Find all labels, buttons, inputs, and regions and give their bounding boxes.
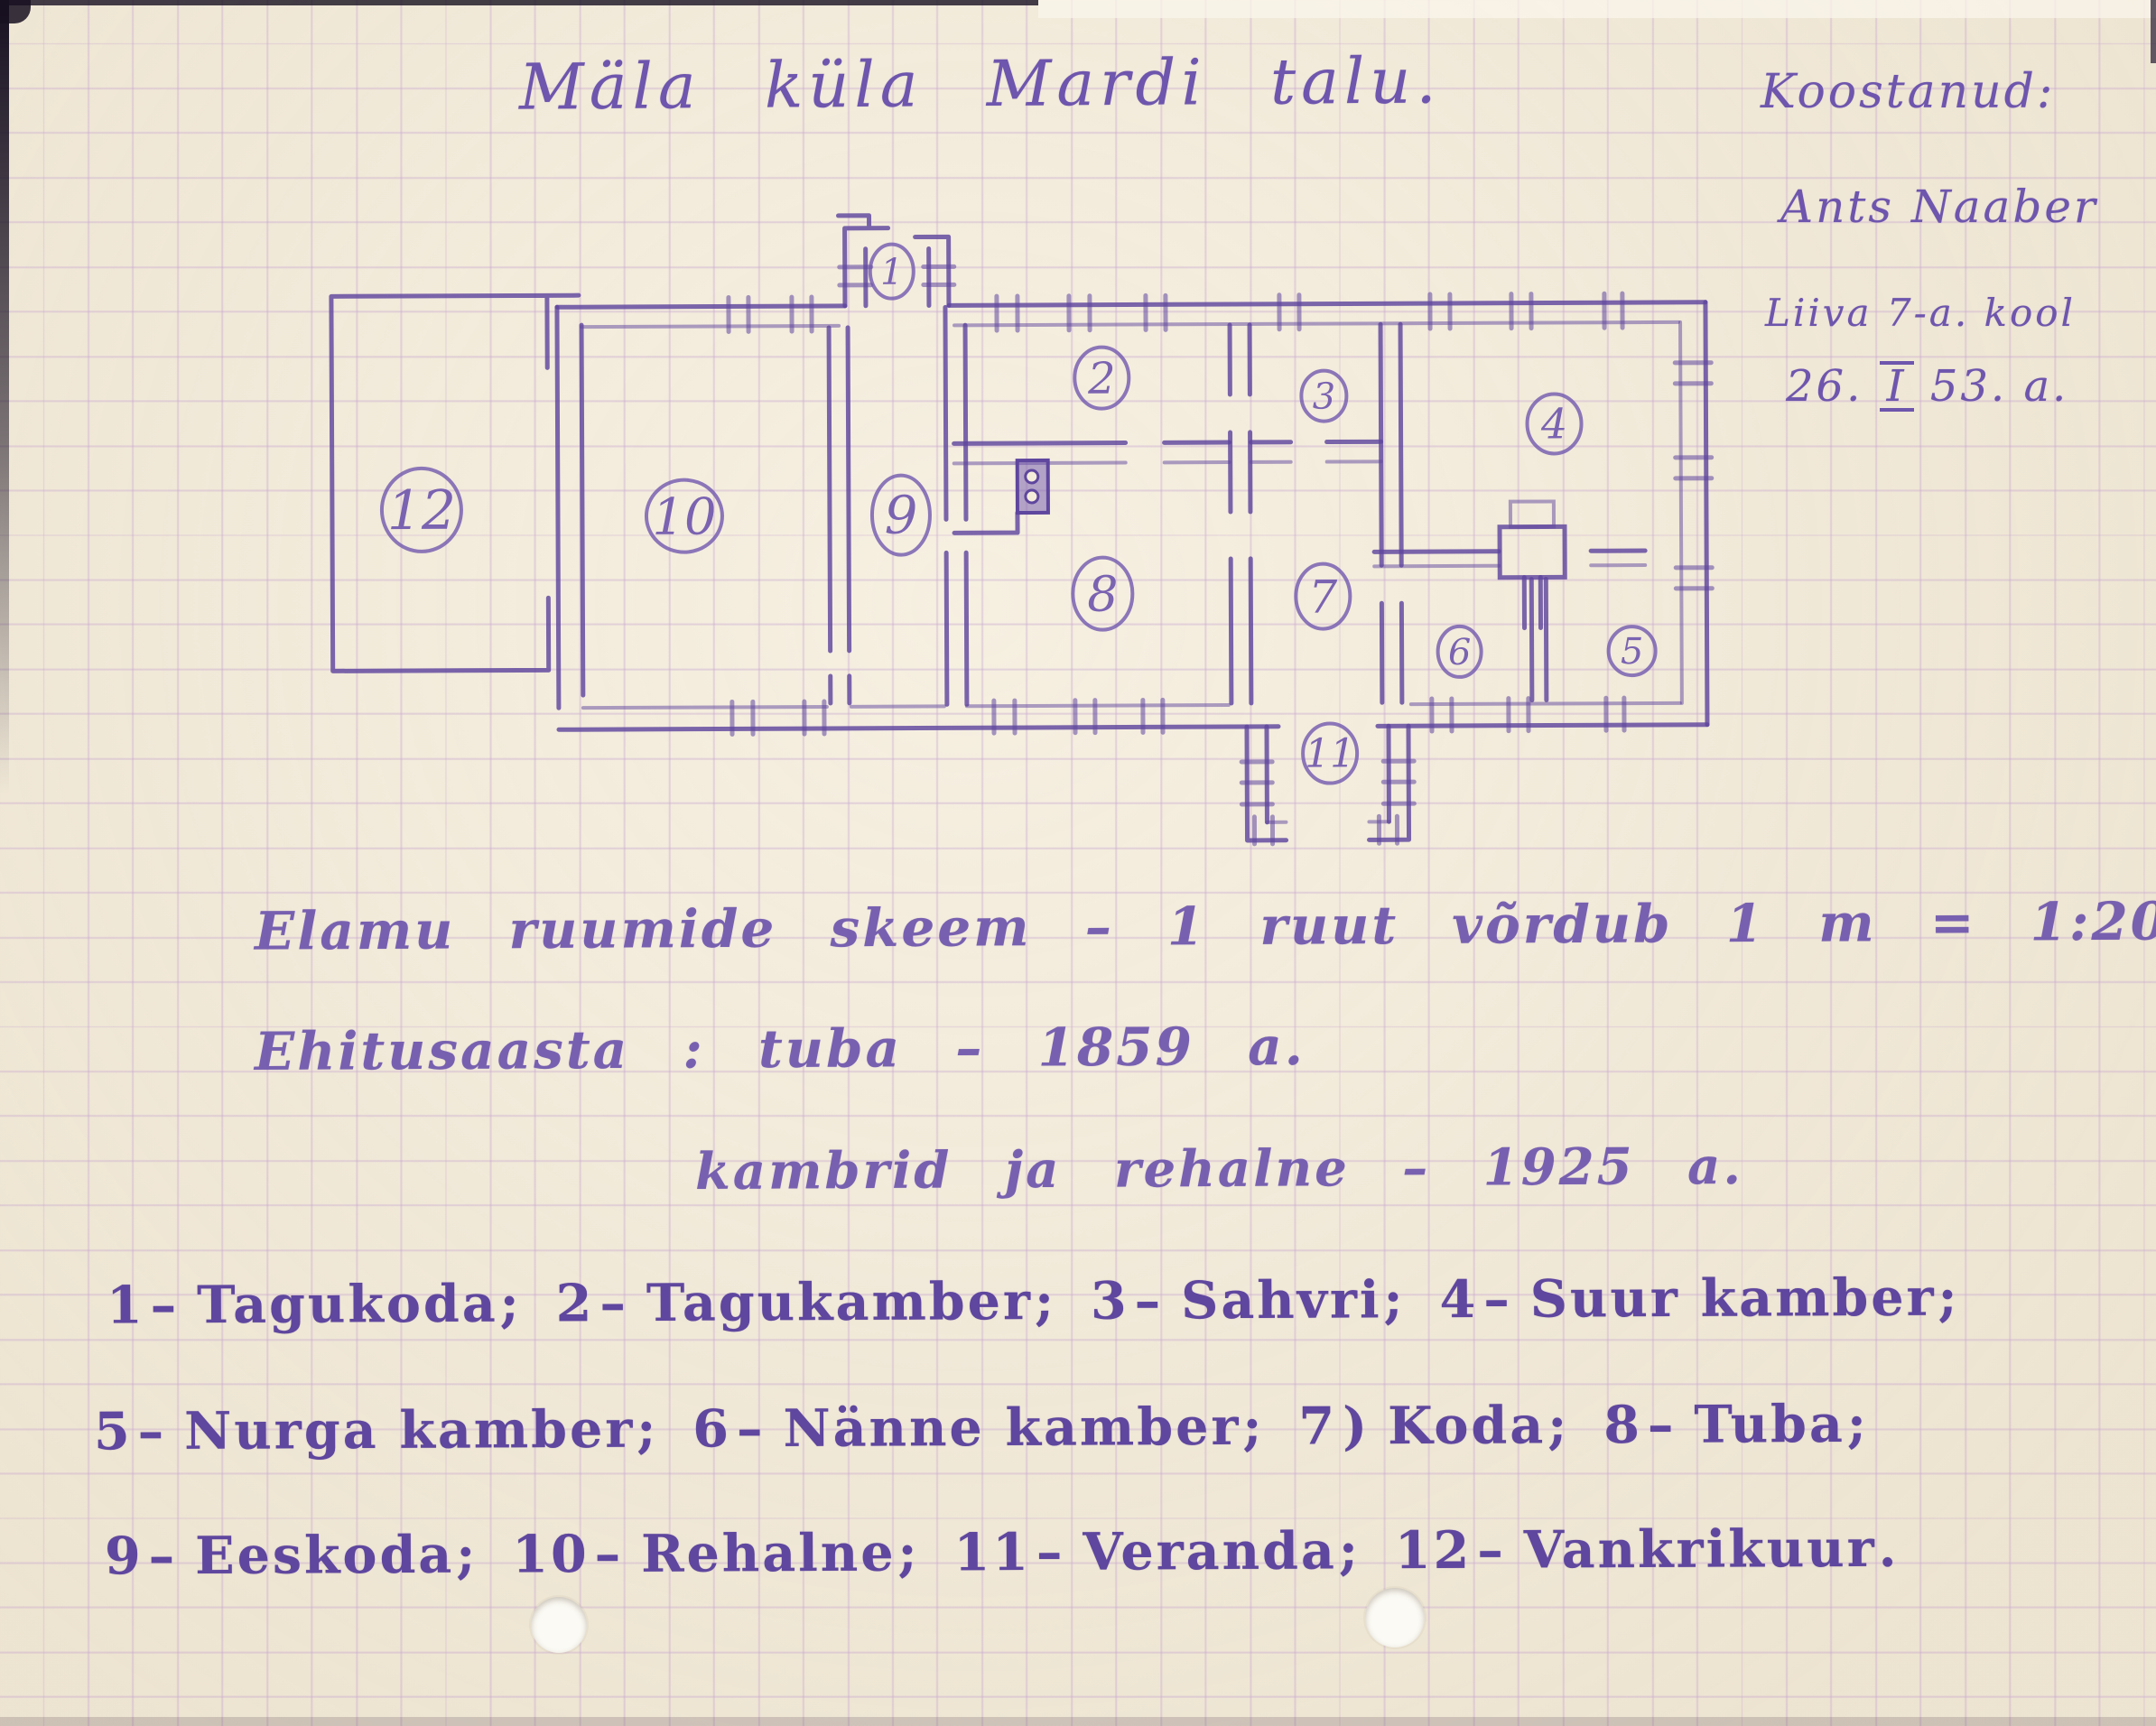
svg-text:9: 9 [884,485,917,546]
legend-delimiter: . [1879,1518,1900,1579]
room-label-9: 9 [872,475,930,554]
legend-room-number: 6 [692,1398,731,1459]
legend-separator: – [599,1273,628,1333]
legend-room-number: 1 [107,1275,145,1335]
date-day: 26. [1786,361,1863,412]
legend-row-2: 5–Nurga kamber;6–Nänne kamber;7)Koda;8–T… [94,1394,1903,1462]
scan-edge-top [0,0,1038,5]
room-label-11: 11 [1303,723,1357,783]
legend-separator: – [1648,1395,1677,1455]
punch-hole-right [1365,1588,1425,1647]
legend-delimiter: ; [1339,1520,1361,1581]
scheme-scale-note: Elamu ruumide skeem – 1 ruut võrdub 1 m … [255,890,2156,961]
room-label-3: 3 [1301,370,1346,421]
svg-text:3: 3 [1313,376,1336,418]
room-label-12: 12 [382,469,461,552]
scanned-notebook-page: { "document": { "title": "Mäla küla Mard… [0,0,2156,1726]
room-label-10: 10 [646,479,722,552]
legend-row-3: 9–Eeskoda;10–Rehalne;11–Veranda;12–Vankr… [105,1518,1934,1587]
svg-text:11: 11 [1305,730,1355,776]
svg-text:12: 12 [387,479,457,543]
legend-separator: – [1135,1270,1164,1331]
author-label: Koostanud: [1761,65,2055,119]
punch-hole-left [531,1597,587,1653]
legend-room-name: Suur kamber [1530,1267,1937,1330]
scan-edge-bottom [0,1717,2156,1726]
svg-text:8: 8 [1087,566,1119,623]
legend-delimiter: ; [1242,1397,1264,1457]
legend-delimiter: ; [1547,1395,1569,1455]
room-label-5: 5 [1609,626,1656,675]
stove-icon [1018,460,1048,513]
legend-room-number: 4 [1439,1269,1478,1330]
date-month-roman-numeral: I [1880,361,1914,412]
legend-separator: – [1483,1269,1512,1330]
built-year-note-1: Ehitusaasta : tuba – 1859 a. [255,1016,1306,1082]
legend-room-name: Koda [1388,1395,1546,1456]
legend-room-number: 12 [1395,1520,1473,1581]
legend-delimiter: ; [1847,1394,1869,1454]
legend-room-number: 8 [1603,1395,1642,1455]
page-title: Mäla küla Mardi talu. [519,43,1442,124]
svg-text:5: 5 [1621,631,1644,673]
legend-delimiter: ; [456,1525,478,1585]
legend-room-name: Nurga kamber [184,1399,635,1462]
floor-plan: 1 2 3 4 5 6 7 8 [296,177,1761,869]
svg-text:10: 10 [652,488,717,547]
legend-room-name: Rehalne [641,1523,897,1584]
legend-separator: – [737,1398,766,1459]
legend-room-number: 9 [105,1526,144,1586]
legend-room-number: 11 [953,1522,1031,1582]
room-label-8: 8 [1073,558,1132,630]
author-name: Ants Naaber [1780,181,2098,233]
legend-room-name: Sahvri [1181,1269,1382,1331]
legend-room-number: 3 [1091,1271,1129,1332]
paper-edge-top-right [1038,0,2156,18]
legend-separator: – [1036,1522,1065,1582]
scan-edge-right [2151,0,2156,63]
room-label-4: 4 [1527,394,1581,453]
scan-corner-top-left [0,0,31,23]
room-label-7: 7 [1296,563,1350,628]
svg-text:4: 4 [1540,399,1568,448]
legend-room-name: Veranda [1083,1520,1337,1582]
legend-separator: – [138,1401,167,1462]
legend-room-name: Nänne kamber [783,1397,1241,1459]
legend-room-name: Tuba [1694,1394,1845,1455]
svg-text:7: 7 [1308,571,1337,624]
room-label-6: 6 [1438,626,1482,677]
legend-separator: – [595,1524,624,1584]
date-year: 53. a. [1930,361,2068,412]
scan-edge-left [0,0,9,794]
legend-delimiter: ; [1383,1269,1405,1330]
legend-separator: – [151,1275,180,1335]
legend-room-name: Eeskoda [195,1525,454,1586]
legend-separator: – [149,1526,178,1586]
author-date: 26. I 53. a. [1786,361,2068,412]
svg-text:1: 1 [880,252,904,293]
legend-delimiter: ; [1938,1267,1959,1328]
legend-room-name: Vankrikuur [1524,1518,1877,1581]
legend-delimiter: ; [1035,1271,1056,1332]
svg-text:2: 2 [1087,354,1116,404]
legend-separator: ) [1343,1396,1370,1456]
author-school: Liiva 7-a. kool [1765,291,2076,335]
built-year-note-2: kambrid ja rehalne – 1925 a. [695,1137,1743,1202]
legend-delimiter: ; [500,1274,522,1334]
legend-row-1: 1–Tagukoda;2–Tagukamber;3–Sahvri;4–Suur … [107,1267,1994,1335]
legend-room-number: 2 [556,1273,595,1333]
legend-separator: – [1477,1520,1506,1581]
room-label-1: 1 [870,245,914,299]
legend-room-name: Tagukoda [197,1274,498,1335]
svg-text:6: 6 [1448,632,1472,673]
legend-delimiter: ; [897,1522,919,1582]
legend-room-number: 7 [1298,1396,1337,1456]
legend-delimiter: ; [637,1399,658,1460]
legend-room-number: 10 [512,1524,590,1584]
legend-room-number: 5 [94,1401,133,1462]
legend-room-name: Tagukamber [646,1271,1033,1333]
room-label-2: 2 [1074,348,1129,409]
